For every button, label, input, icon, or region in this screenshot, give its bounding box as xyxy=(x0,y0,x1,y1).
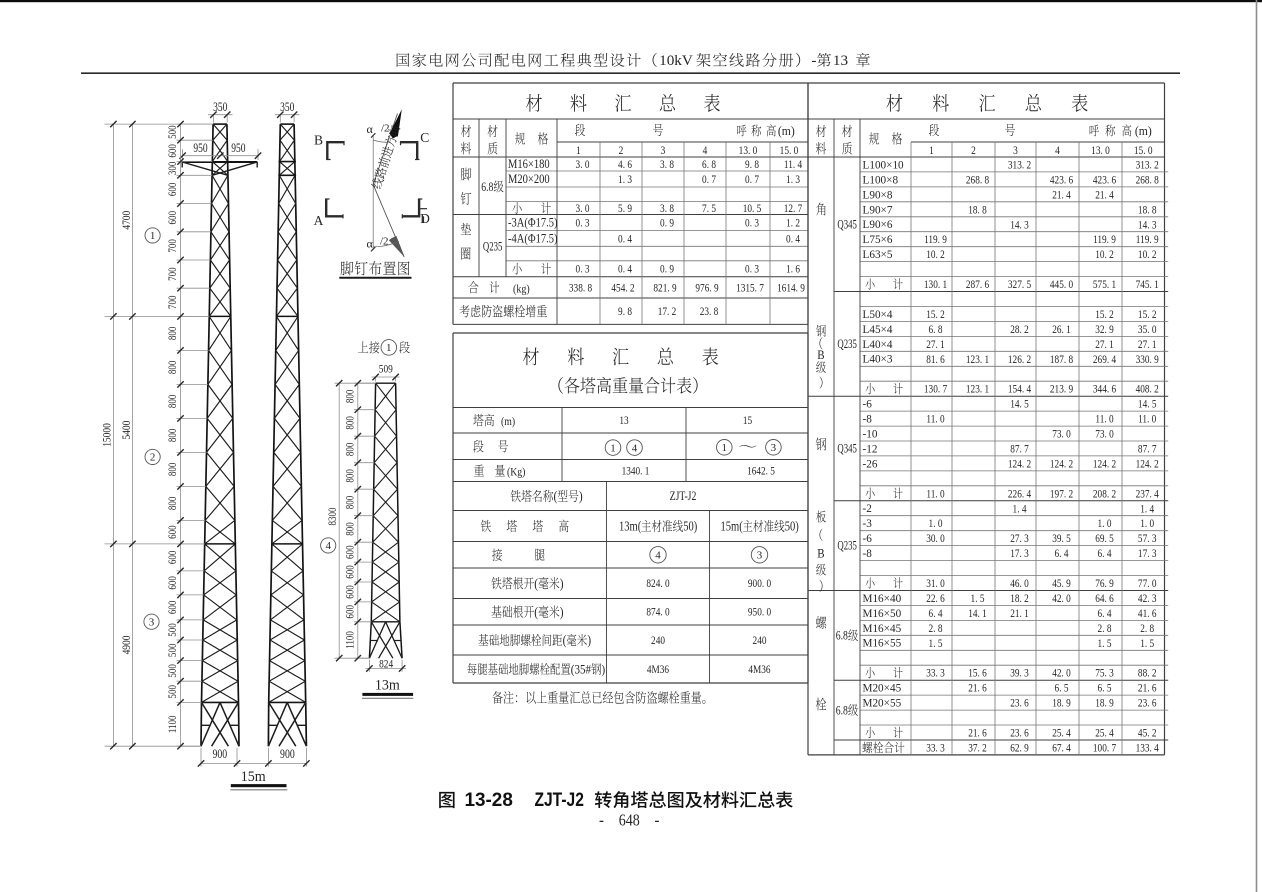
svg-text:4: 4 xyxy=(1055,144,1060,157)
svg-text:950: 950 xyxy=(231,142,246,155)
svg-text:287. 6: 287. 6 xyxy=(966,278,990,291)
svg-text:575. 1: 575. 1 xyxy=(1093,278,1116,291)
svg-text:13. 0: 13. 0 xyxy=(1091,144,1110,157)
svg-text:L90×7: L90×7 xyxy=(863,204,893,216)
svg-text:9. 8: 9. 8 xyxy=(745,158,759,171)
svg-text:15. 2: 15. 2 xyxy=(1095,308,1114,321)
svg-text:1. 6: 1. 6 xyxy=(786,263,800,276)
svg-text:1: 1 xyxy=(576,144,581,157)
svg-text:): ) xyxy=(560,604,564,619)
svg-text:4900: 4900 xyxy=(120,636,133,655)
svg-text:18. 9: 18. 9 xyxy=(1095,697,1114,710)
svg-text:33. 3: 33. 3 xyxy=(926,667,945,680)
svg-text:10. 2: 10. 2 xyxy=(926,248,945,261)
svg-text:Q235: Q235 xyxy=(483,241,503,254)
svg-text:600: 600 xyxy=(345,585,357,599)
svg-text:33. 3: 33. 3 xyxy=(926,741,945,754)
svg-text:124. 2: 124. 2 xyxy=(1050,457,1073,470)
svg-text:-12: -12 xyxy=(863,443,878,455)
svg-text:0. 7: 0. 7 xyxy=(702,173,716,186)
svg-text:4M36: 4M36 xyxy=(748,663,771,676)
svg-text:330. 9: 330. 9 xyxy=(1136,353,1159,366)
svg-text:B: B xyxy=(314,132,323,147)
svg-text:4M36: 4M36 xyxy=(647,663,670,676)
svg-text:3: 3 xyxy=(771,442,777,454)
svg-text:21. 6: 21. 6 xyxy=(968,726,987,739)
svg-text:23. 6: 23. 6 xyxy=(1010,726,1029,739)
svg-text:M16×180: M16×180 xyxy=(508,159,550,172)
svg-text:0. 9: 0. 9 xyxy=(660,263,674,276)
svg-text:6. 4: 6. 4 xyxy=(1098,547,1112,560)
svg-text:45. 2: 45. 2 xyxy=(1138,726,1157,739)
svg-text:800: 800 xyxy=(345,469,357,483)
svg-text:600: 600 xyxy=(167,551,179,565)
svg-text:6. 8: 6. 8 xyxy=(702,158,716,171)
svg-text:0. 3: 0. 3 xyxy=(745,263,759,276)
svg-text:15. 0: 15. 0 xyxy=(1134,144,1153,157)
svg-text:15. 2: 15. 2 xyxy=(926,308,945,321)
svg-text:313. 2: 313. 2 xyxy=(1136,158,1159,171)
svg-text:76. 9: 76. 9 xyxy=(1095,577,1114,590)
svg-text:600: 600 xyxy=(345,545,357,559)
svg-text:-4A(Φ17.5): -4A(Φ17.5) xyxy=(508,233,558,246)
svg-text:1. 0: 1. 0 xyxy=(929,517,943,530)
svg-text:4: 4 xyxy=(632,442,638,454)
svg-text:1: 1 xyxy=(610,442,616,454)
svg-text:600: 600 xyxy=(345,605,357,619)
svg-text:237. 4: 237. 4 xyxy=(1136,487,1160,500)
svg-text:226. 4: 226. 4 xyxy=(1008,487,1032,500)
svg-text:15m(: 15m( xyxy=(721,518,743,533)
svg-text:3. 0: 3. 0 xyxy=(576,202,590,215)
svg-text:6. 8: 6. 8 xyxy=(929,323,943,336)
svg-text:27. 1: 27. 1 xyxy=(926,338,945,351)
svg-text:240: 240 xyxy=(651,634,665,647)
svg-text:268. 8: 268. 8 xyxy=(1136,173,1159,186)
svg-text:269. 4: 269. 4 xyxy=(1093,353,1117,366)
svg-text:77. 0: 77. 0 xyxy=(1138,577,1157,590)
svg-text:42. 3: 42. 3 xyxy=(1138,592,1157,605)
svg-text:13m: 13m xyxy=(375,677,400,693)
svg-text:23. 6: 23. 6 xyxy=(1010,697,1029,710)
svg-text:1. 3: 1. 3 xyxy=(786,173,800,186)
svg-text:): ) xyxy=(560,576,564,591)
svg-text:800: 800 xyxy=(167,429,179,443)
svg-text:950: 950 xyxy=(193,142,208,155)
svg-text:950. 0: 950. 0 xyxy=(748,606,771,619)
svg-text:(m): (m) xyxy=(501,415,516,428)
svg-text:900. 0: 900. 0 xyxy=(748,577,771,590)
svg-text:1. 4: 1. 4 xyxy=(1013,502,1027,515)
svg-text:187. 8: 187. 8 xyxy=(1050,353,1073,366)
svg-text:15. 2: 15. 2 xyxy=(1138,308,1157,321)
svg-text:13m(: 13m( xyxy=(619,518,641,533)
svg-text:-26: -26 xyxy=(863,458,878,470)
svg-text:21. 6: 21. 6 xyxy=(1138,682,1157,695)
svg-text:37. 2: 37. 2 xyxy=(968,741,987,754)
svg-text:2: 2 xyxy=(619,144,624,157)
svg-text:821. 9: 821. 9 xyxy=(653,281,676,294)
svg-text:L45×4: L45×4 xyxy=(863,324,893,336)
svg-text:126. 2: 126. 2 xyxy=(1008,353,1031,366)
svg-text:32. 9: 32. 9 xyxy=(1095,323,1114,336)
svg-text:6. 5: 6. 5 xyxy=(1055,682,1069,695)
svg-text:800: 800 xyxy=(345,390,357,404)
svg-text:408. 2: 408. 2 xyxy=(1136,383,1159,396)
svg-text:423. 6: 423. 6 xyxy=(1050,173,1074,186)
svg-text:Q345: Q345 xyxy=(837,443,857,456)
svg-text:18. 8: 18. 8 xyxy=(1138,203,1157,216)
svg-text:62. 9: 62. 9 xyxy=(1010,741,1029,754)
svg-text:1. 0: 1. 0 xyxy=(1098,517,1112,530)
svg-text:41. 6: 41. 6 xyxy=(1138,607,1157,620)
svg-text:2. 8: 2. 8 xyxy=(1098,622,1112,635)
svg-text:14. 3: 14. 3 xyxy=(1138,218,1157,231)
svg-text:313. 2: 313. 2 xyxy=(1008,158,1031,171)
svg-text:197. 2: 197. 2 xyxy=(1050,487,1073,500)
svg-text:600: 600 xyxy=(345,565,357,579)
svg-text:327. 5: 327. 5 xyxy=(1008,278,1031,291)
svg-text:α: α xyxy=(367,237,374,251)
svg-text:M20×55: M20×55 xyxy=(863,697,902,709)
svg-text:133. 4: 133. 4 xyxy=(1136,741,1160,754)
svg-text:10. 2: 10. 2 xyxy=(1138,248,1157,261)
svg-text:L90×6: L90×6 xyxy=(863,219,893,231)
svg-text:3. 8: 3. 8 xyxy=(660,202,674,215)
svg-text:21. 1: 21. 1 xyxy=(1010,607,1029,620)
svg-text:L40×3: L40×3 xyxy=(863,353,893,365)
svg-text:C: C xyxy=(420,130,429,145)
svg-text:/2: /2 xyxy=(381,123,390,135)
svg-text:M16×45: M16×45 xyxy=(863,623,902,635)
svg-text:10kV: 10kV xyxy=(659,52,693,69)
svg-text:500: 500 xyxy=(167,644,179,658)
svg-text:1: 1 xyxy=(929,144,934,157)
svg-text:50): 50) xyxy=(785,518,799,533)
svg-text:0. 3: 0. 3 xyxy=(576,263,590,276)
svg-text:800: 800 xyxy=(167,327,179,341)
svg-text:81. 6: 81. 6 xyxy=(926,353,945,366)
svg-text:Q235: Q235 xyxy=(837,339,857,352)
svg-text:1. 2: 1. 2 xyxy=(786,216,800,229)
svg-text:900: 900 xyxy=(280,748,295,761)
svg-text:M16×50: M16×50 xyxy=(863,608,902,620)
svg-text:L50×4: L50×4 xyxy=(863,309,893,321)
svg-text:344. 6: 344. 6 xyxy=(1093,383,1117,396)
svg-text:600: 600 xyxy=(167,211,179,225)
svg-text:(kg): (kg) xyxy=(513,283,530,296)
svg-text:1: 1 xyxy=(722,442,728,454)
svg-text:6.8: 6.8 xyxy=(481,181,493,195)
svg-text:15000: 15000 xyxy=(100,423,113,447)
svg-text:11. 0: 11. 0 xyxy=(1138,413,1156,426)
svg-text:2: 2 xyxy=(150,452,156,464)
svg-text:0. 3: 0. 3 xyxy=(745,216,759,229)
svg-text:18. 2: 18. 2 xyxy=(1010,592,1029,605)
svg-text:): ) xyxy=(587,633,591,648)
svg-text:-8: -8 xyxy=(863,548,873,560)
svg-text:17. 3: 17. 3 xyxy=(1138,547,1157,560)
svg-text:3. 8: 3. 8 xyxy=(660,158,674,171)
svg-text:(35#: (35# xyxy=(571,662,591,677)
svg-text:21. 4: 21. 4 xyxy=(1052,188,1071,201)
svg-text:(m): (m) xyxy=(1135,123,1152,138)
svg-text:67. 4: 67. 4 xyxy=(1052,741,1071,754)
svg-text:-8: -8 xyxy=(863,413,873,425)
svg-text:42. 0: 42. 0 xyxy=(1052,667,1071,680)
svg-text:6.8: 6.8 xyxy=(836,630,848,644)
svg-text:874. 0: 874. 0 xyxy=(646,606,669,619)
svg-text:-6: -6 xyxy=(863,533,873,545)
svg-text:350: 350 xyxy=(213,101,228,114)
svg-text:17. 3: 17. 3 xyxy=(1010,547,1029,560)
svg-text:39. 3: 39. 3 xyxy=(1010,667,1029,680)
svg-text:3: 3 xyxy=(661,144,666,157)
svg-text:124. 2: 124. 2 xyxy=(1136,457,1159,470)
svg-text:21. 6: 21. 6 xyxy=(968,682,987,695)
svg-text:10. 5: 10. 5 xyxy=(743,202,762,215)
svg-text:21. 4: 21. 4 xyxy=(1095,188,1114,201)
svg-text:13-28: 13-28 xyxy=(465,790,514,811)
svg-text:1. 4: 1. 4 xyxy=(1140,502,1154,515)
svg-text:11. 0: 11. 0 xyxy=(926,413,944,426)
svg-text:15m: 15m xyxy=(241,769,266,785)
svg-text:500: 500 xyxy=(167,125,179,139)
svg-text:8300: 8300 xyxy=(327,507,339,525)
svg-text:-: - xyxy=(599,812,604,830)
svg-text:88. 2: 88. 2 xyxy=(1138,667,1157,680)
svg-text:3: 3 xyxy=(757,550,763,562)
svg-text:6.8: 6.8 xyxy=(836,704,848,718)
svg-text:700: 700 xyxy=(167,267,179,281)
svg-text:1614. 9: 1614. 9 xyxy=(777,281,805,294)
svg-text:4: 4 xyxy=(325,540,331,552)
svg-text:73. 0: 73. 0 xyxy=(1095,427,1114,440)
svg-text:240: 240 xyxy=(753,634,767,647)
svg-text:130. 1: 130. 1 xyxy=(924,278,947,291)
svg-text:800: 800 xyxy=(167,395,179,409)
svg-text:800: 800 xyxy=(167,497,179,511)
svg-text:M16×55: M16×55 xyxy=(863,637,902,649)
svg-text:39. 5: 39. 5 xyxy=(1052,532,1071,545)
svg-text:500: 500 xyxy=(167,664,179,678)
svg-text:11. 0: 11. 0 xyxy=(926,487,944,500)
svg-text:2: 2 xyxy=(971,144,976,157)
svg-text:26. 1: 26. 1 xyxy=(1052,323,1071,336)
svg-text:14. 1: 14. 1 xyxy=(968,607,987,620)
svg-text:800: 800 xyxy=(345,496,357,510)
svg-text:23. 8: 23. 8 xyxy=(700,305,719,318)
svg-text:800: 800 xyxy=(345,443,357,457)
svg-text:(: ( xyxy=(534,576,538,591)
svg-text:600: 600 xyxy=(167,525,179,539)
svg-text:): ) xyxy=(579,489,583,504)
svg-text:69. 5: 69. 5 xyxy=(1095,532,1114,545)
svg-text:1100: 1100 xyxy=(167,715,179,733)
svg-text:268. 8: 268. 8 xyxy=(966,173,989,186)
svg-text:Q345: Q345 xyxy=(837,219,857,232)
svg-text:454. 2: 454. 2 xyxy=(611,281,634,294)
svg-text:15: 15 xyxy=(743,414,752,427)
svg-text:0. 4: 0. 4 xyxy=(786,232,800,245)
svg-text:14. 5: 14. 5 xyxy=(1010,398,1029,411)
svg-text:Q235: Q235 xyxy=(837,541,857,554)
svg-text:30. 0: 30. 0 xyxy=(926,532,945,545)
svg-text:87. 7: 87. 7 xyxy=(1138,442,1157,455)
svg-text:-: - xyxy=(811,52,816,69)
svg-text:423. 6: 423. 6 xyxy=(1093,173,1117,186)
svg-text:31. 0: 31. 0 xyxy=(926,577,945,590)
svg-text:124. 2: 124. 2 xyxy=(1093,457,1116,470)
svg-text:45. 9: 45. 9 xyxy=(1052,577,1071,590)
svg-text:1: 1 xyxy=(386,342,392,354)
svg-text:6. 4: 6. 4 xyxy=(1055,547,1069,560)
svg-text:(: ( xyxy=(563,633,567,648)
svg-text:ZJT-J2: ZJT-J2 xyxy=(535,789,585,811)
svg-text:25. 4: 25. 4 xyxy=(1052,726,1071,739)
svg-text:L90×8: L90×8 xyxy=(863,189,893,201)
svg-text:3: 3 xyxy=(149,616,155,628)
svg-text:208. 2: 208. 2 xyxy=(1093,487,1116,500)
svg-text:75. 3: 75. 3 xyxy=(1095,667,1114,680)
svg-text:4: 4 xyxy=(655,550,661,562)
svg-text:1315. 7: 1315. 7 xyxy=(736,281,764,294)
svg-text:1642. 5: 1642. 5 xyxy=(747,464,775,477)
svg-text:17. 2: 17. 2 xyxy=(658,305,677,318)
svg-text:1. 5: 1. 5 xyxy=(1098,637,1112,650)
svg-text:): ) xyxy=(602,662,606,677)
svg-text:ZJT-J2: ZJT-J2 xyxy=(670,490,697,503)
svg-text:46. 0: 46. 0 xyxy=(1010,577,1029,590)
svg-text:800: 800 xyxy=(167,361,179,375)
svg-text:B: B xyxy=(817,546,824,561)
svg-text:-3: -3 xyxy=(863,518,873,530)
svg-text:0. 4: 0. 4 xyxy=(618,263,632,276)
svg-text:745. 1: 745. 1 xyxy=(1136,278,1159,291)
svg-text:648: 648 xyxy=(619,811,640,829)
svg-text:-10: -10 xyxy=(863,428,878,440)
svg-text:28. 2: 28. 2 xyxy=(1010,323,1029,336)
svg-text:(: ( xyxy=(534,604,538,619)
svg-text:119. 9: 119. 9 xyxy=(1136,233,1159,246)
svg-text:350: 350 xyxy=(280,101,295,114)
svg-text:11. 0: 11. 0 xyxy=(1095,413,1113,426)
svg-text:600: 600 xyxy=(167,576,179,590)
svg-text:445. 0: 445. 0 xyxy=(1050,278,1073,291)
svg-text:800: 800 xyxy=(345,522,357,536)
svg-text:6. 5: 6. 5 xyxy=(1098,682,1112,695)
svg-text:57. 3: 57. 3 xyxy=(1138,532,1157,545)
svg-text:700: 700 xyxy=(167,296,179,310)
svg-text:3. 0: 3. 0 xyxy=(576,158,590,171)
svg-text:27. 3: 27. 3 xyxy=(1010,532,1029,545)
svg-text:4: 4 xyxy=(703,144,708,157)
svg-text:500: 500 xyxy=(167,685,179,699)
svg-text:42. 0: 42. 0 xyxy=(1052,592,1071,605)
svg-text:7. 5: 7. 5 xyxy=(702,202,716,215)
svg-text:13: 13 xyxy=(833,52,848,69)
svg-text:3: 3 xyxy=(1013,144,1018,157)
svg-text:0. 7: 0. 7 xyxy=(745,173,759,186)
svg-text:18. 8: 18. 8 xyxy=(968,203,987,216)
svg-text:14. 5: 14. 5 xyxy=(1138,398,1157,411)
svg-text:22. 6: 22. 6 xyxy=(926,592,945,605)
svg-text:D: D xyxy=(420,211,430,226)
svg-text:23. 6: 23. 6 xyxy=(1138,697,1157,710)
svg-text:-6: -6 xyxy=(863,398,873,410)
svg-text:5. 9: 5. 9 xyxy=(618,202,632,215)
svg-text:13. 0: 13. 0 xyxy=(739,144,758,157)
svg-text:-2: -2 xyxy=(863,503,873,515)
svg-text:35. 0: 35. 0 xyxy=(1138,323,1157,336)
svg-text:(: ( xyxy=(554,489,558,504)
svg-text:600: 600 xyxy=(167,144,179,158)
svg-text:27. 1: 27. 1 xyxy=(1095,338,1114,351)
svg-text:700: 700 xyxy=(167,239,179,253)
svg-text:(m): (m) xyxy=(778,123,795,138)
svg-text:1. 5: 1. 5 xyxy=(1140,637,1154,650)
svg-text:600: 600 xyxy=(167,183,179,197)
svg-text:1: 1 xyxy=(150,230,156,242)
svg-text:100. 7: 100. 7 xyxy=(1093,741,1117,754)
svg-text:10. 2: 10. 2 xyxy=(1095,248,1114,261)
svg-text:0. 3: 0. 3 xyxy=(576,216,590,229)
svg-text:13: 13 xyxy=(619,414,628,427)
svg-text:1340. 1: 1340. 1 xyxy=(622,464,650,477)
svg-text:0. 4: 0. 4 xyxy=(618,232,632,245)
svg-text:0. 9: 0. 9 xyxy=(660,216,674,229)
svg-text:-: - xyxy=(655,812,660,830)
svg-text:(Kg): (Kg) xyxy=(507,466,526,479)
svg-text:73. 0: 73. 0 xyxy=(1052,427,1071,440)
svg-text:2. 8: 2. 8 xyxy=(929,622,943,635)
svg-text:M16×40: M16×40 xyxy=(863,593,902,605)
svg-text:9. 8: 9. 8 xyxy=(618,305,632,318)
svg-text:130. 7: 130. 7 xyxy=(924,383,948,396)
svg-text:1100: 1100 xyxy=(345,631,357,649)
svg-text:4700: 4700 xyxy=(120,211,133,230)
svg-text:25. 4: 25. 4 xyxy=(1095,726,1114,739)
svg-text:119. 9: 119. 9 xyxy=(924,233,947,246)
svg-text:L100×10: L100×10 xyxy=(863,159,904,171)
svg-text:B: B xyxy=(817,347,824,362)
svg-text:119. 9: 119. 9 xyxy=(1093,233,1116,246)
svg-text:800: 800 xyxy=(345,416,357,430)
svg-text:L40×4: L40×4 xyxy=(863,339,893,351)
svg-text:154. 4: 154. 4 xyxy=(1008,383,1032,396)
svg-text:α: α xyxy=(367,122,374,136)
svg-text:15. 0: 15. 0 xyxy=(780,144,799,157)
svg-text:824: 824 xyxy=(379,657,394,670)
svg-text:123. 1: 123. 1 xyxy=(966,353,989,366)
svg-text:213. 9: 213. 9 xyxy=(1050,383,1073,396)
svg-text:64. 6: 64. 6 xyxy=(1095,592,1114,605)
svg-text:A: A xyxy=(314,213,324,228)
svg-text:L63×5: L63×5 xyxy=(863,249,893,261)
svg-text:1. 5: 1. 5 xyxy=(971,592,985,605)
svg-text:6. 4: 6. 4 xyxy=(929,607,943,620)
svg-text:4. 6: 4. 6 xyxy=(618,158,632,171)
svg-text:124. 2: 124. 2 xyxy=(1008,457,1031,470)
svg-text:976. 9: 976. 9 xyxy=(695,281,718,294)
svg-text:338. 8: 338. 8 xyxy=(569,281,592,294)
svg-text:M20×45: M20×45 xyxy=(863,682,902,694)
svg-text:-3A(Φ17.5): -3A(Φ17.5) xyxy=(508,217,558,230)
svg-text:27. 1: 27. 1 xyxy=(1138,338,1157,351)
svg-text:600: 600 xyxy=(167,601,179,615)
svg-text:2. 8: 2. 8 xyxy=(1140,622,1154,635)
svg-text:L75×6: L75×6 xyxy=(863,234,893,246)
